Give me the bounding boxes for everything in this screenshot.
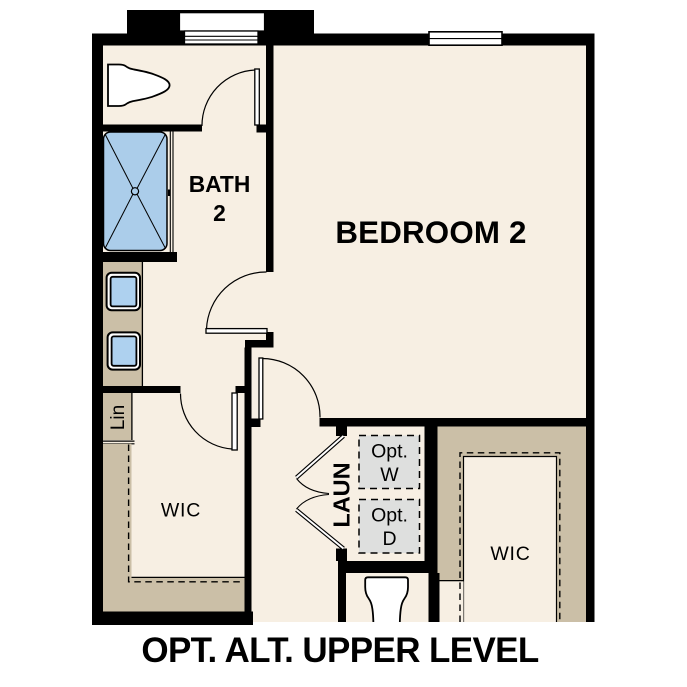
svg-text:LAUN: LAUN	[329, 462, 355, 527]
svg-text:OPT. ALT. UPPER LEVEL: OPT. ALT. UPPER LEVEL	[141, 631, 539, 670]
svg-text:WIC: WIC	[490, 543, 530, 565]
svg-text:BEDROOM 2: BEDROOM 2	[335, 215, 526, 250]
svg-text:Opt.: Opt.	[371, 505, 408, 527]
svg-text:Opt.: Opt.	[371, 441, 408, 463]
svg-text:2: 2	[213, 200, 226, 226]
svg-text:BATH: BATH	[189, 171, 251, 197]
svg-text:Lin: Lin	[108, 405, 129, 430]
svg-text:D: D	[382, 528, 396, 550]
svg-text:W: W	[380, 464, 399, 486]
svg-text:WIC: WIC	[161, 500, 201, 522]
